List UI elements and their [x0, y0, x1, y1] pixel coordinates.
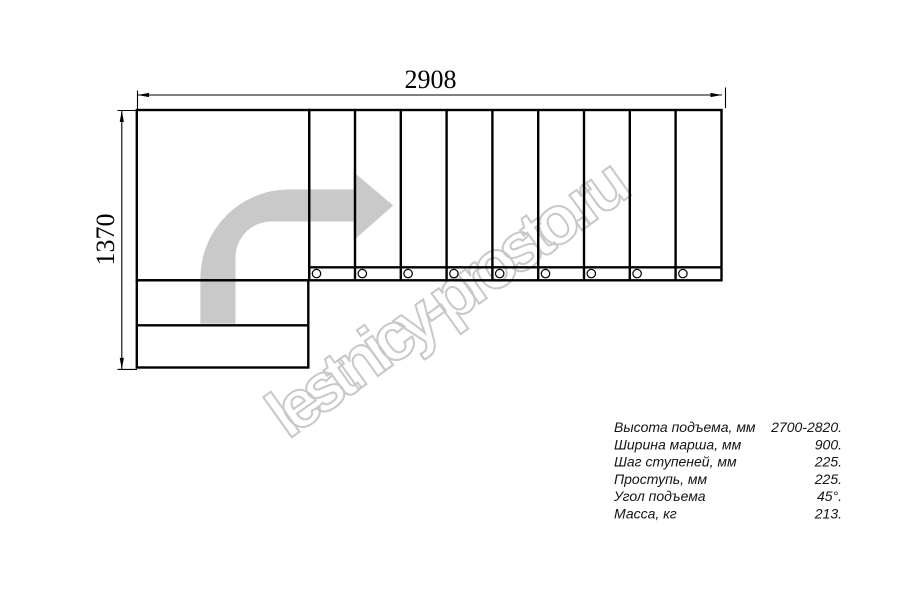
svg-text:2700-2820.: 2700-2820.	[770, 419, 842, 435]
svg-text:Ширина марша, мм: Ширина марша, мм	[614, 436, 742, 452]
svg-text:225.: 225.	[814, 454, 842, 470]
svg-text:45°.: 45°.	[817, 488, 842, 504]
svg-text:Высота подъема, мм: Высота подъема, мм	[614, 419, 756, 435]
svg-text:2908: 2908	[405, 65, 457, 94]
svg-text:Масса, кг: Масса, кг	[614, 506, 677, 522]
svg-text:Угол подъема: Угол подъема	[613, 488, 706, 504]
svg-text:900.: 900.	[815, 436, 842, 452]
svg-text:225.: 225.	[814, 471, 842, 487]
svg-text:213.: 213.	[814, 506, 842, 522]
svg-text:Проступь, мм: Проступь, мм	[614, 471, 708, 487]
svg-text:Шаг ступеней, мм: Шаг ступеней, мм	[614, 454, 737, 470]
svg-text:1370: 1370	[91, 214, 120, 266]
